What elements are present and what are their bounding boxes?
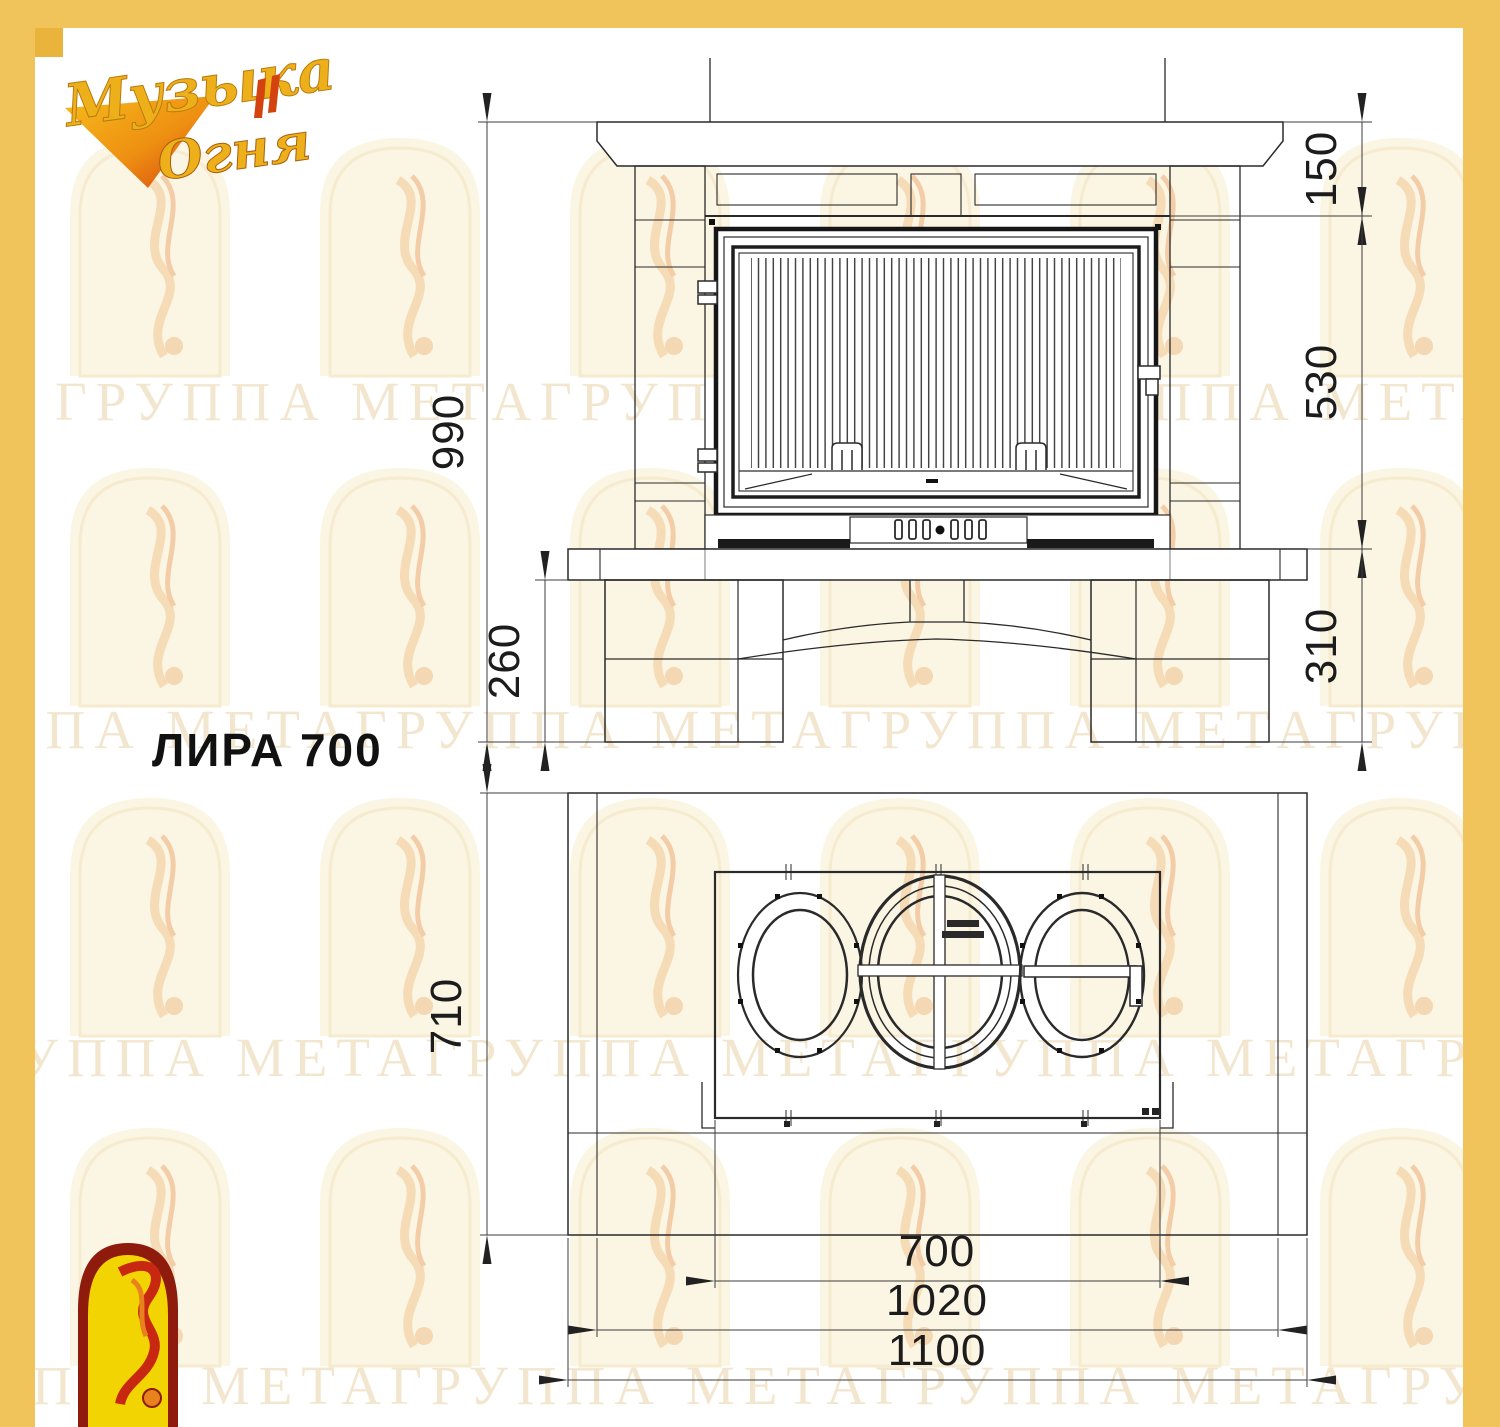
dim-value-700: 700 <box>899 1227 975 1276</box>
sill-center-mark <box>926 479 938 483</box>
watermark-row-4: ГРУППА МЕТАГРУППА МЕТАГРУППА МЕТАГРУППА … <box>0 1355 1500 1416</box>
emblem-sun-dot <box>143 1389 161 1407</box>
dim-value-150: 150 <box>1297 131 1346 207</box>
dim-value-1020: 1020 <box>886 1276 988 1325</box>
damper-bar-horizontal <box>858 965 1022 976</box>
dancer-emblem <box>78 1243 178 1427</box>
drawing-title: ЛИРА 700 <box>152 724 383 776</box>
dim-value-260: 260 <box>480 623 529 699</box>
border-right <box>1463 0 1500 1427</box>
andiron-foot-right <box>1016 443 1046 470</box>
dim-value-710: 710 <box>422 978 471 1054</box>
door-grille-ribs <box>751 258 1121 468</box>
page: ГРУППА МЕТАГРУППА МЕТАГРУППА МЕТАГРУППА … <box>0 0 1500 1427</box>
pipe-bar <box>1024 966 1136 977</box>
firebox-insert <box>698 216 1170 549</box>
strip-dark-band-right <box>1027 539 1154 548</box>
border-corner-accent <box>35 28 63 57</box>
technical-drawing-canvas: ГРУППА МЕТАГРУППА МЕТАГРУППА МЕТАГРУППА … <box>0 0 1500 1427</box>
border-top <box>0 0 1500 28</box>
strip-dark-band-left <box>718 539 850 548</box>
fastener-dot-left <box>709 219 715 225</box>
dim-value-530: 530 <box>1297 344 1346 420</box>
watermark-row-3: ГРУППА МЕТАГРУППА МЕТАГРУППА МЕТАГРУППА … <box>0 1027 1500 1088</box>
dim-value-310: 310 <box>1297 608 1346 684</box>
mantel-shelf <box>597 122 1283 166</box>
vent-knob <box>936 526 945 535</box>
hearth-slab <box>568 549 1307 580</box>
dim-value-990: 990 <box>424 394 473 470</box>
border-left <box>0 0 35 1427</box>
dim-value-1100: 1100 <box>888 1326 987 1375</box>
control-strip <box>705 515 1170 549</box>
flue-opening-center <box>858 875 1022 1069</box>
andiron-foot-left <box>832 443 862 470</box>
